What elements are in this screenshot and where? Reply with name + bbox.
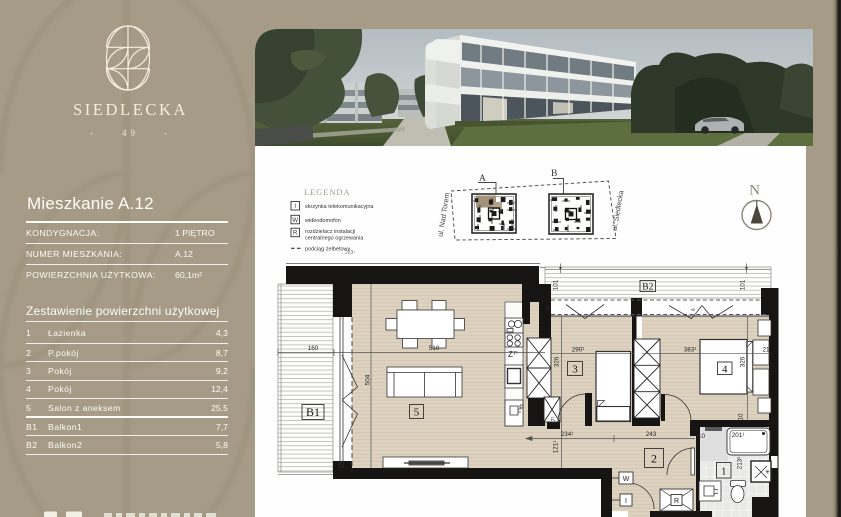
svg-text:290¹: 290¹	[572, 347, 585, 354]
svg-text:skrzynka telekomunikacyjna: skrzynka telekomunikacyjna	[305, 204, 374, 210]
svg-text:I: I	[294, 204, 296, 210]
svg-text:510: 510	[429, 345, 440, 352]
svg-text:234¹: 234¹	[561, 431, 574, 438]
svg-text:N: N	[749, 183, 760, 199]
svg-text:383¹: 383¹	[684, 347, 697, 354]
svg-text:rozdzielacz instalacji: rozdzielacz instalacji	[305, 229, 355, 235]
svg-text:326: 326	[554, 356, 561, 367]
svg-text:✳: ✳	[765, 469, 770, 476]
svg-text:wideodomofon: wideodomofon	[304, 218, 341, 224]
svg-text:326: 326	[740, 356, 747, 367]
svg-text:B: B	[551, 169, 557, 179]
svg-text:2: 2	[651, 452, 657, 466]
svg-text:R: R	[293, 231, 298, 237]
svg-text:121¹: 121¹	[553, 441, 560, 454]
svg-text:B2: B2	[642, 283, 653, 293]
svg-text:W: W	[292, 218, 298, 224]
svg-text:7¹: 7¹	[551, 416, 557, 421]
svg-text:B1: B1	[306, 405, 320, 419]
svg-text:R: R	[674, 498, 679, 505]
svg-text:4: 4	[722, 364, 728, 376]
svg-text:LEGENDA: LEGENDA	[304, 187, 350, 197]
svg-text:I: I	[625, 498, 627, 505]
svg-text:W: W	[623, 476, 630, 483]
svg-text:10: 10	[738, 413, 745, 421]
svg-text:centralnego ogrzewania: centralnego ogrzewania	[305, 236, 364, 242]
svg-text:10: 10	[698, 433, 706, 440]
svg-text:504: 504	[365, 374, 372, 385]
svg-text:6: 6	[691, 308, 697, 311]
svg-text:podciąg żelbetowy: podciąg żelbetowy	[305, 247, 351, 253]
svg-text:201¹: 201¹	[732, 432, 745, 439]
svg-text:213¹: 213¹	[737, 457, 744, 470]
svg-text:5: 5	[414, 407, 420, 419]
svg-text:3: 3	[572, 364, 578, 376]
svg-text:243: 243	[646, 431, 657, 438]
svg-text:21: 21	[762, 347, 770, 354]
svg-text:101: 101	[553, 279, 560, 290]
svg-text:101: 101	[740, 279, 747, 290]
svg-text:6: 6	[546, 306, 552, 309]
svg-text:1: 1	[721, 466, 727, 478]
svg-text:ul. Nad Torem: ul. Nad Torem	[436, 192, 452, 237]
svg-text:160: 160	[308, 345, 319, 352]
